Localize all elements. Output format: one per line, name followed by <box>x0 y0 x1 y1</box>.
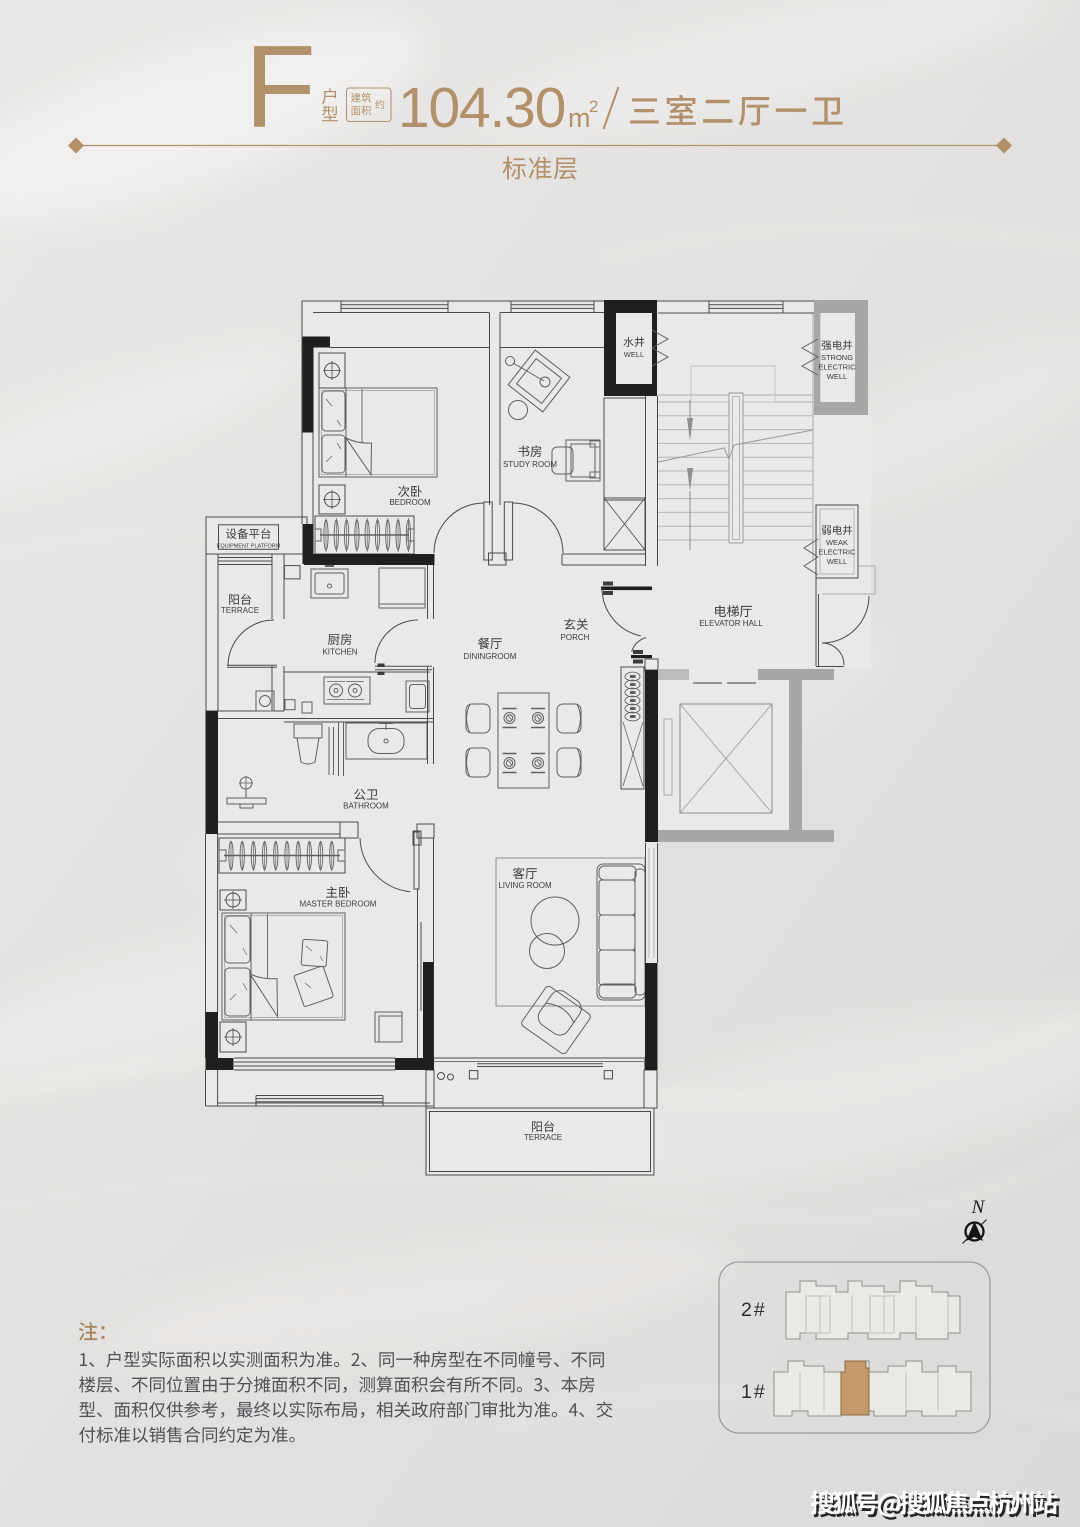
svg-text:104.30: 104.30 <box>398 76 565 140</box>
svg-text:2: 2 <box>589 97 598 116</box>
svg-text:KITCHEN: KITCHEN <box>322 648 357 657</box>
svg-text:WELL: WELL <box>827 372 847 381</box>
svg-text:TERRACE: TERRACE <box>221 606 259 615</box>
svg-text:ELECTRIC: ELECTRIC <box>818 363 856 372</box>
svg-text:PORCH: PORCH <box>561 633 590 642</box>
svg-text:F: F <box>245 21 316 152</box>
svg-text:BATHROOM: BATHROOM <box>343 802 389 811</box>
svg-text:STUDY ROOM: STUDY ROOM <box>503 460 557 469</box>
svg-text:WEAK: WEAK <box>826 538 848 547</box>
svg-text:1#: 1# <box>741 1381 767 1403</box>
svg-text:TERRACE: TERRACE <box>524 1133 562 1142</box>
svg-text:WELL: WELL <box>827 557 847 566</box>
svg-text:ELECTRIC: ELECTRIC <box>818 548 856 557</box>
svg-text:LIVING ROOM: LIVING ROOM <box>498 881 552 890</box>
svg-text:EQUIPMENT PLATFORM: EQUIPMENT PLATFORM <box>217 544 281 550</box>
svg-text:ELEVATOR HALL: ELEVATOR HALL <box>699 619 763 628</box>
svg-text:STRONG: STRONG <box>821 353 853 362</box>
svg-text:BEDROOM: BEDROOM <box>389 498 431 507</box>
svg-text:MASTER BEDROOM: MASTER BEDROOM <box>300 900 377 909</box>
svg-text:m: m <box>568 103 591 133</box>
svg-text:WELL: WELL <box>624 350 644 359</box>
svg-text:DININGROOM: DININGROOM <box>464 652 517 661</box>
svg-text:2#: 2# <box>741 1299 767 1321</box>
svg-text:N: N <box>971 1197 986 1218</box>
